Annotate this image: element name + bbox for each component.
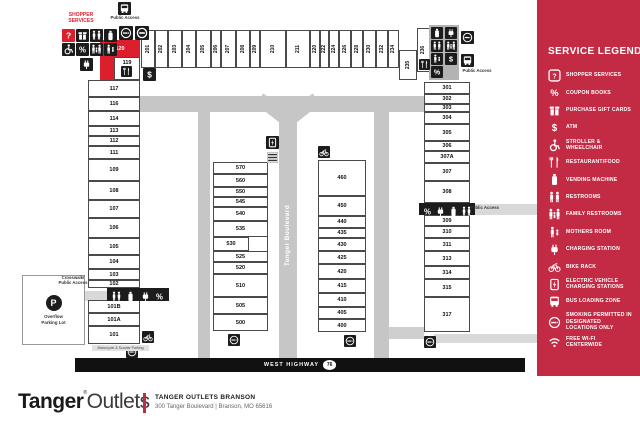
store-unit-109[interactable]: 109	[88, 159, 140, 181]
service-icon-bar: %	[419, 203, 475, 215]
percent-icon: %	[76, 43, 89, 56]
mall-directory-page: Tanger Boulevard 20120220320420520620720…	[0, 0, 640, 424]
store-number: 202	[159, 45, 165, 53]
store-number: 410	[337, 297, 346, 303]
store-number: 415	[337, 283, 346, 289]
store-unit-101[interactable]: 101	[88, 326, 140, 344]
store-number: 203	[172, 45, 178, 53]
store-unit-315[interactable]: 315	[424, 279, 470, 297]
legend-item-wheelchair: STROLLER & WHEELCHAIR	[548, 139, 632, 152]
store-number: 405	[337, 310, 346, 316]
ev-icon	[266, 136, 279, 149]
store-number: 560	[236, 178, 245, 184]
store-unit-313[interactable]: 313	[424, 251, 470, 266]
store-number: 234	[391, 45, 397, 53]
restrooms-icon	[431, 40, 443, 52]
logo-outlets: Outlets	[87, 390, 150, 413]
legend-label: SMOKING PERMITTED IN DESIGNATED LOCATION…	[566, 312, 632, 331]
store-number: 228	[354, 45, 360, 53]
store-number: 210	[270, 45, 276, 53]
center-address: 300 Tanger Boulevard | Branson, MO 65616	[155, 404, 272, 410]
mothers-icon	[104, 43, 117, 56]
store-number: 301	[442, 85, 451, 91]
store-unit-317[interactable]: 317	[424, 297, 470, 332]
store-unit-235[interactable]: 235	[399, 50, 417, 80]
store-unit-204[interactable]: 204	[182, 30, 196, 68]
vending-icon	[431, 27, 443, 39]
bike-icon	[548, 260, 561, 273]
store-number: 430	[337, 242, 346, 248]
store-unit-101A[interactable]: 101A	[88, 313, 140, 326]
store-number: 204	[186, 45, 192, 53]
store-unit-107[interactable]: 107	[88, 200, 140, 218]
legend-item-ev: ELECTRIC VEHICLE CHARGING STATIONS	[548, 278, 632, 291]
store-number: 400	[337, 323, 346, 329]
svg-text:?: ?	[552, 73, 556, 80]
overflow-parking-label: Overflow Parking Lot	[37, 314, 71, 325]
parking-icon: P	[46, 295, 62, 311]
legend-item-wifi: FREE WI-FI CENTERWIDE	[548, 336, 632, 349]
store-number: 211	[295, 45, 301, 53]
legend-label: ELECTRIC VEHICLE CHARGING STATIONS	[566, 278, 632, 291]
store-unit-106[interactable]: 106	[88, 218, 140, 238]
store-unit-206[interactable]: 206	[211, 30, 221, 68]
svg-text:$: $	[147, 70, 152, 79]
footer: Tanger®Outlets TANGER OUTLETS BRANSON 30…	[0, 376, 640, 424]
store-number: 102	[109, 281, 118, 287]
legend-label: BUS LOADING ZONE	[566, 298, 620, 304]
gift-icon	[76, 29, 89, 42]
legend-item-smoking: SMOKING PERMITTED IN DESIGNATED LOCATION…	[548, 312, 632, 331]
mothers-icon	[548, 226, 561, 239]
legend-item-family: FAMILY RESTROOMS	[548, 208, 632, 221]
store-number: 205	[201, 45, 207, 53]
logo-tanger: Tanger	[18, 390, 83, 413]
store-unit-314[interactable]: 314	[424, 266, 470, 279]
store-unit-545[interactable]: 545	[213, 197, 268, 207]
legend-item-vending: VENDING MACHINE	[548, 173, 632, 186]
store-number: 307A	[440, 154, 453, 160]
tanger-outlets-logo: Tanger®Outlets	[18, 390, 150, 414]
smoking-icon	[119, 26, 133, 40]
legend-label: PURCHASE GIFT CARDS	[566, 107, 631, 113]
store-number: 307	[442, 169, 451, 175]
store-unit-111[interactable]: 111	[88, 146, 140, 159]
store-number: 113	[110, 128, 119, 134]
vending-icon	[104, 29, 117, 42]
charging-icon	[80, 58, 93, 71]
store-number: 101A	[107, 317, 120, 323]
charging-icon	[445, 27, 457, 39]
dollar-icon: $	[445, 53, 457, 65]
store-unit-209[interactable]: 209	[250, 30, 260, 68]
store-unit-520[interactable]: 520	[213, 262, 268, 274]
legend-item-shopper-services: ?SHOPPER SERVICES	[548, 69, 632, 82]
store-unit-460[interactable]: 460	[318, 160, 366, 196]
store-number: 535	[236, 226, 245, 232]
svg-text:$: $	[449, 55, 454, 64]
svg-text:%: %	[550, 88, 558, 98]
store-unit-550[interactable]: 550	[213, 187, 268, 197]
store-unit-220[interactable]: 220	[310, 30, 320, 68]
store-number: 209	[252, 45, 258, 53]
restrooms-icon	[90, 29, 103, 42]
store-unit-306[interactable]: 306	[424, 141, 470, 151]
store-unit-211[interactable]: 211	[286, 30, 310, 68]
store-number: 305	[442, 130, 451, 136]
legend-label: MOTHERS ROOM	[566, 229, 611, 235]
dollar-icon: $	[548, 121, 561, 134]
bus-icon	[118, 2, 131, 15]
gift-icon	[548, 104, 561, 117]
legend-label: CHARGING STATION	[566, 246, 620, 252]
store-number: 222	[322, 45, 328, 53]
smoking-icon	[228, 334, 240, 346]
store-number: 224	[331, 45, 337, 53]
highway-76-badge: 76	[323, 360, 336, 370]
store-unit-105[interactable]: 105	[88, 238, 140, 255]
charging-icon	[140, 289, 151, 300]
store-unit-224[interactable]: 224	[329, 30, 339, 68]
store-number: 111	[110, 150, 119, 156]
road-tanger-boulevard: Tanger Boulevard	[279, 112, 297, 358]
store-number: 315	[442, 285, 451, 291]
store-unit-560[interactable]: 560	[213, 174, 268, 187]
store-number: 545	[236, 199, 245, 205]
store-number: 304	[442, 115, 451, 121]
svg-text:%: %	[156, 292, 163, 301]
road-stub-bottom-right	[434, 334, 537, 343]
store-number: 510	[236, 283, 245, 289]
store-number: 440	[337, 219, 346, 225]
smoking-icon	[548, 316, 561, 329]
evspaces-icon	[266, 151, 279, 164]
vending-icon	[448, 204, 459, 215]
bus-icon	[461, 54, 474, 67]
legend-label: STROLLER & WHEELCHAIR	[566, 139, 632, 152]
legend-label: COUPON BOOKS	[566, 90, 611, 96]
store-unit-232[interactable]: 232	[376, 30, 388, 68]
store-number: 106	[109, 225, 118, 231]
road-left-lane	[198, 112, 210, 358]
percent-icon: %	[154, 289, 165, 300]
store-number: 201	[145, 45, 151, 53]
svg-text:%: %	[424, 207, 431, 216]
west-highway-bar: WEST HIGHWAY 76	[75, 358, 525, 372]
store-unit-234[interactable]: 234	[388, 30, 399, 68]
mothers-icon	[431, 53, 443, 65]
map-area: Tanger Boulevard 20120220320420520620720…	[0, 0, 537, 424]
vending-icon	[548, 173, 561, 186]
store-number: 308	[442, 189, 451, 195]
store-number: 101	[109, 332, 118, 338]
store-number: 500	[236, 320, 245, 326]
store-unit-311[interactable]: 311	[424, 238, 470, 251]
road-stub-317	[389, 327, 424, 339]
legend-label: FAMILY RESTROOMS	[566, 211, 622, 217]
store-number: 302	[442, 96, 451, 102]
footer-info: TANGER OUTLETS BRANSON 300 Tanger Boulev…	[155, 394, 272, 410]
store-number: 226	[342, 45, 348, 53]
store-number: 103	[109, 272, 118, 278]
store-number: 525	[236, 254, 245, 260]
restaurant-icon	[121, 66, 132, 77]
legend-item-dollar: $ATM	[548, 121, 632, 134]
store-unit-540[interactable]: 540	[213, 207, 268, 221]
store-unit-302[interactable]: 302	[424, 94, 470, 104]
store-number: 208	[240, 45, 246, 53]
store-number: 101B	[107, 304, 120, 310]
store-number: 313	[442, 256, 451, 262]
road-right-lane	[374, 112, 389, 358]
boulevard-label: Tanger Boulevard	[279, 112, 297, 358]
legend-label: FREE WI-FI CENTERWIDE	[566, 336, 632, 349]
public-access-label-topright: Public Access	[447, 69, 507, 74]
store-unit-113[interactable]: 113	[88, 126, 140, 136]
store-unit-525[interactable]: 525	[213, 251, 268, 262]
store-unit-405[interactable]: 405	[318, 307, 366, 319]
legend-label: SHOPPER SERVICES	[566, 72, 621, 78]
percent-icon: %	[422, 204, 433, 215]
store-unit-430[interactable]: 430	[318, 238, 366, 251]
public-access-label-top: Public Access	[100, 16, 150, 21]
svg-text:%: %	[79, 45, 86, 54]
restrooms-icon	[548, 191, 561, 204]
store-unit-114[interactable]: 114	[88, 111, 140, 126]
store-unit-203[interactable]: 203	[168, 30, 182, 68]
store-number: 235	[405, 61, 411, 69]
store-number: 207	[226, 45, 232, 53]
store-unit-116[interactable]: 116	[88, 97, 140, 111]
highway-label: WEST HIGHWAY	[264, 362, 319, 368]
legend-title: SERVICE LEGEND	[548, 46, 632, 57]
store-unit-222[interactable]: 222	[320, 30, 329, 68]
store-number: 425	[337, 255, 346, 261]
wheelchair-icon	[548, 139, 561, 152]
store-unit-310[interactable]: 310	[424, 226, 470, 238]
legend-label: ATM	[566, 124, 577, 130]
store-unit-210[interactable]: 210	[260, 30, 286, 68]
legend-item-bus: BUS LOADING ZONE	[548, 295, 632, 308]
legend-label: BIKE RACK	[566, 264, 596, 270]
restaurant-icon	[419, 59, 430, 70]
question-icon: ?	[62, 29, 75, 42]
store-unit-530[interactable]: 530	[213, 237, 249, 251]
store-number: 505	[236, 303, 245, 309]
store-number: 232	[379, 45, 385, 53]
percent-icon: %	[431, 66, 443, 78]
store-unit-410[interactable]: 410	[318, 293, 366, 307]
store-unit-304[interactable]: 304	[424, 112, 470, 124]
svg-text:?: ?	[66, 30, 71, 40]
footer-separator	[143, 393, 146, 413]
store-unit-301[interactable]: 301	[424, 82, 470, 94]
store-unit-117[interactable]: 117	[88, 80, 140, 97]
store-unit-570[interactable]: 570	[213, 162, 268, 174]
store-unit-205[interactable]: 205	[196, 30, 211, 68]
store-unit-309[interactable]: 309	[424, 215, 470, 226]
percent-icon: %	[548, 86, 561, 99]
store-number: 317	[442, 312, 451, 318]
store-number: 310	[442, 229, 451, 235]
legend-item-mothers: MOTHERS ROOM	[548, 226, 632, 239]
store-number: 112	[110, 138, 119, 144]
store-unit-226[interactable]: 226	[339, 30, 351, 68]
store-number: 108	[109, 188, 118, 194]
ev-icon	[548, 278, 561, 291]
smoking-icon	[424, 336, 436, 348]
store-unit-308[interactable]: 308	[424, 181, 470, 203]
legend-item-gift: PURCHASE GIFT CARDS	[548, 104, 632, 117]
store-number: 530	[226, 241, 235, 247]
store-unit-305[interactable]: 305	[424, 124, 470, 141]
store-number: 109	[109, 167, 118, 173]
store-unit-307[interactable]: 307	[424, 163, 470, 181]
store-number: 114	[110, 116, 119, 122]
vending-icon	[125, 289, 136, 300]
charging-icon	[548, 243, 561, 256]
store-number: 104	[109, 259, 118, 265]
store-unit-303[interactable]: 303	[424, 104, 470, 112]
smoking-icon	[344, 335, 356, 347]
store-unit-450[interactable]: 450	[318, 196, 366, 216]
store-number: 311	[443, 242, 452, 248]
store-number: 540	[236, 211, 245, 217]
store-unit-500[interactable]: 500	[213, 314, 268, 331]
store-unit-230[interactable]: 230	[363, 30, 376, 68]
dollar-icon: $	[143, 68, 156, 81]
store-unit-108[interactable]: 108	[88, 181, 140, 200]
store-number: 107	[109, 206, 118, 212]
noentry-icon	[135, 26, 149, 40]
store-number: 435	[337, 230, 346, 236]
family-icon	[548, 208, 561, 221]
store-unit-104[interactable]: 104	[88, 255, 140, 269]
family-icon	[90, 43, 103, 56]
store-number: 520	[236, 265, 245, 271]
store-number: 460	[337, 175, 346, 181]
restrooms-icon	[111, 289, 122, 300]
store-number: 117	[110, 86, 119, 92]
store-unit-400[interactable]: 400	[318, 319, 366, 332]
store-unit-228[interactable]: 228	[351, 30, 363, 68]
store-number: 105	[109, 244, 118, 250]
bike-icon	[318, 146, 330, 158]
motorcycle-parking-label: Motorcycle & Scooter Parking	[92, 345, 149, 351]
legend-label: VENDING MACHINE	[566, 177, 617, 183]
store-number: 450	[337, 203, 346, 209]
legend-label: RESTAURANT/FOOD	[566, 159, 620, 165]
service-icon-bar: %	[107, 288, 169, 301]
store-number: 116	[110, 101, 119, 107]
store-unit-535[interactable]: 535	[213, 221, 268, 237]
wifi-icon	[548, 336, 561, 349]
legend-item-percent: %COUPON BOOKS	[548, 86, 632, 99]
store-unit-415[interactable]: 415	[318, 279, 366, 293]
store-unit-420[interactable]: 420	[318, 264, 366, 279]
wheelchair-icon	[62, 43, 75, 56]
shopper-services-label: SHOPPER SERVICES	[62, 13, 100, 25]
store-unit-425[interactable]: 425	[318, 251, 366, 264]
store-unit-435[interactable]: 435	[318, 228, 366, 238]
legend-item-restaurant: RESTAURANT/FOOD	[548, 156, 632, 169]
store-unit-505[interactable]: 505	[213, 297, 268, 314]
crosswalk-label-line2: Public Access	[59, 280, 88, 285]
store-number: 550	[236, 189, 245, 195]
legend-item-restrooms: RESTROOMS	[548, 191, 632, 204]
store-number: 309	[442, 218, 451, 224]
store-number: 570	[236, 165, 245, 171]
family-icon	[445, 40, 457, 52]
store-number: 303	[442, 105, 451, 111]
center-name: TANGER OUTLETS BRANSON	[155, 394, 272, 401]
store-unit-440[interactable]: 440	[318, 216, 366, 228]
legend-item-charging: CHARGING STATION	[548, 243, 632, 256]
store-unit-208[interactable]: 208	[236, 30, 250, 68]
store-unit-307A[interactable]: 307A	[424, 151, 470, 163]
store-number: 236	[421, 46, 427, 54]
public-access-label-right: Public Access	[470, 206, 528, 211]
shopper-services-icon: ?	[548, 69, 561, 82]
charging-icon	[435, 204, 446, 215]
store-number: 306	[442, 143, 451, 149]
bike-icon	[142, 331, 154, 343]
service-legend-sidebar: SERVICE LEGEND ?SHOPPER SERVICES%COUPON …	[537, 0, 640, 376]
legend-label: RESTROOMS	[566, 194, 601, 200]
store-unit-207[interactable]: 207	[221, 30, 236, 68]
store-unit-510[interactable]: 510	[213, 274, 268, 297]
store-unit-112[interactable]: 112	[88, 136, 140, 146]
svg-text:$: $	[552, 123, 558, 134]
store-number: 314	[442, 270, 451, 276]
store-number: 220	[312, 45, 318, 53]
crosswalk-label: Crosswalk/ Public Access	[48, 276, 98, 286]
store-number: 206	[213, 45, 219, 53]
svg-text:%: %	[434, 69, 441, 77]
smoking-icon	[461, 31, 474, 44]
store-number: 230	[367, 45, 373, 53]
bus-icon	[548, 295, 561, 308]
legend-item-bike: BIKE RACK	[548, 260, 632, 273]
store-unit-202[interactable]: 202	[155, 30, 168, 68]
store-number: 420	[337, 269, 346, 275]
restaurant-icon	[548, 156, 561, 169]
